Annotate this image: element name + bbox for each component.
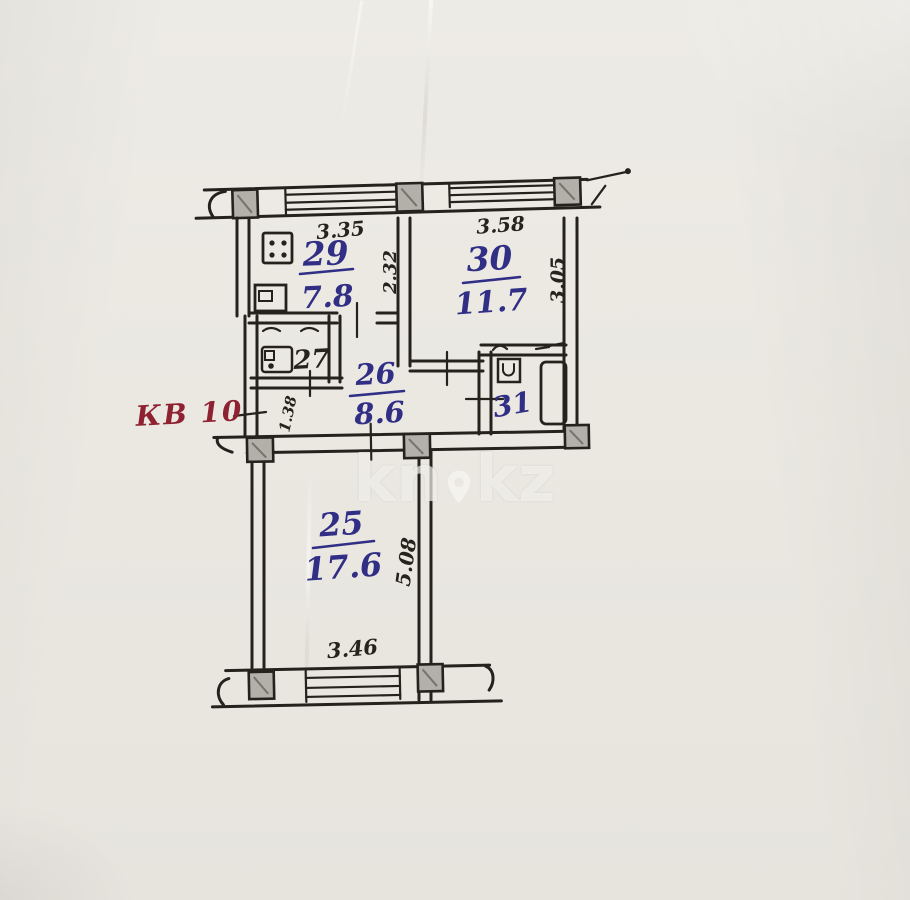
structural-column bbox=[249, 672, 275, 700]
room-29-number: 29 bbox=[301, 233, 349, 274]
washbasin-icon bbox=[262, 347, 292, 372]
dim-room30-depth: 3.05 bbox=[547, 257, 569, 303]
bottom-exterior-wall bbox=[212, 663, 502, 707]
structural-column bbox=[565, 425, 589, 448]
kitchen-sink-icon bbox=[255, 285, 286, 311]
dim-kitchen-depth: 2.32 bbox=[380, 250, 401, 295]
room-31-number: 31 bbox=[490, 385, 534, 424]
room-27-number: 27 bbox=[292, 344, 331, 376]
wall-end-mark bbox=[209, 191, 226, 216]
room-26-area: 8.6 bbox=[352, 395, 405, 432]
structural-column bbox=[554, 178, 581, 206]
wall-end-mark bbox=[486, 666, 494, 690]
structural-column bbox=[418, 664, 444, 692]
dim-room25-width: 3.46 bbox=[326, 634, 380, 663]
bathtub-icon bbox=[541, 362, 566, 424]
structural-column bbox=[404, 434, 430, 458]
window bbox=[285, 187, 396, 215]
structural-column bbox=[247, 437, 273, 461]
extension-line bbox=[587, 172, 625, 180]
wall-end-mark bbox=[591, 186, 605, 204]
floor-plan-drawing: 3.35 3.58 2.32 3.05 1.38 5.08 3.46 29 7.… bbox=[0, 0, 910, 900]
vent-mark bbox=[536, 347, 549, 349]
top-exterior-wall bbox=[195, 168, 632, 219]
room-25-area: 17.6 bbox=[303, 545, 383, 588]
room-labels: 29 7.8 30 11.7 27 26 8.6 31 25 17.6 bbox=[292, 233, 535, 588]
scanned-floor-plan-page: { "page": { "background": "#eae8e1" }, "… bbox=[0, 0, 910, 900]
room-30-area: 11.7 bbox=[454, 283, 529, 323]
apartment-number-label: КВ 10 bbox=[134, 394, 244, 433]
stove-icon bbox=[263, 233, 292, 263]
room-29-area: 7.8 bbox=[301, 279, 355, 317]
room-30-number: 30 bbox=[465, 238, 513, 279]
extension-dot bbox=[625, 168, 631, 174]
dim-room30-width: 3.58 bbox=[475, 211, 525, 238]
door-mark bbox=[263, 328, 280, 331]
structural-column bbox=[396, 183, 423, 212]
room-26-number: 26 bbox=[353, 356, 396, 392]
window bbox=[306, 667, 401, 702]
toilet-icon bbox=[498, 359, 520, 382]
dim-room25-depth: 5.08 bbox=[391, 536, 422, 588]
entry-door-swing bbox=[217, 437, 232, 452]
door-mark bbox=[301, 328, 318, 331]
structural-column bbox=[232, 190, 258, 219]
room-25-number: 25 bbox=[317, 504, 365, 545]
wall-end-mark bbox=[218, 679, 229, 705]
dim-entry-width: 1.38 bbox=[275, 394, 300, 434]
window bbox=[449, 180, 553, 207]
vent-mark bbox=[493, 346, 507, 350]
